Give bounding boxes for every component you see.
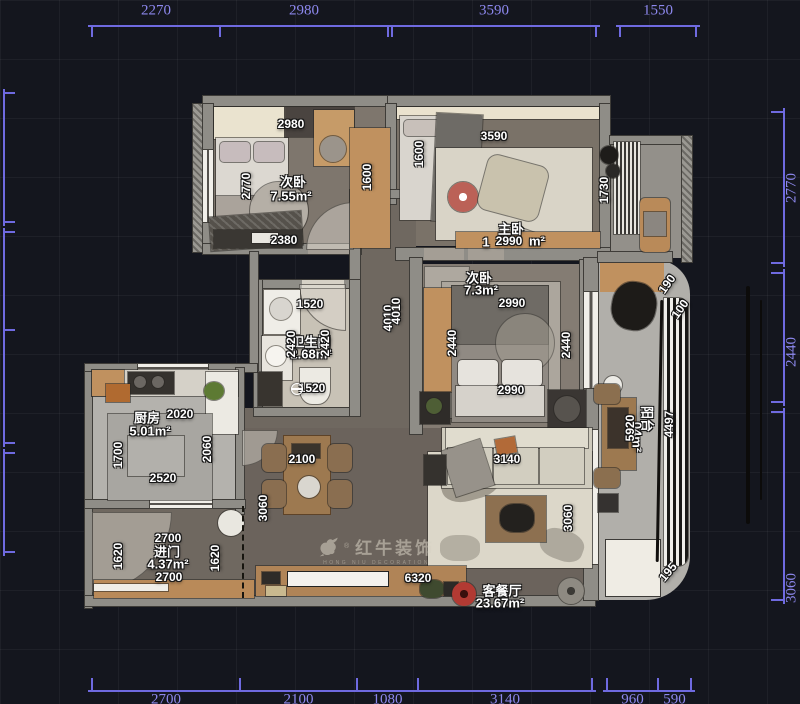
room-label: 1 [482,235,489,250]
dimension-label: 2380 [271,233,298,247]
device [558,578,584,604]
sink-basin [266,346,286,366]
dimension-line [695,25,697,37]
rug-pattern [440,535,480,561]
wall [254,408,358,416]
dimension-line [595,25,597,37]
vegetable-decor [204,382,224,400]
dimension-label: 2440 [559,332,573,359]
exterior-dimension-label: 2770 [784,173,800,203]
dimension-line [3,326,5,447]
wall [682,136,692,262]
dining-chair [262,444,286,472]
decor-item [266,586,286,596]
dimension-line [3,329,15,331]
exterior-dimension-label: 960 [621,692,644,704]
tv [288,572,388,586]
sofa-cushion [540,448,584,484]
dimension-label: 2980 [278,117,305,131]
chair [320,136,346,162]
balcony-chair [594,384,620,404]
dimension-line [88,25,224,27]
wall [250,252,258,370]
speaker-red [452,582,476,606]
side-table [424,455,446,485]
dimension-line [657,678,659,690]
decor-item [262,572,280,584]
wall [85,372,92,608]
wall [203,96,397,106]
dimension-line [3,442,15,444]
dimension-line [387,25,389,37]
dimension-label: 1600 [412,141,426,168]
dimension-label: 2770 [239,173,253,200]
dimension-label: 2100 [289,452,316,466]
washing-machine [606,540,660,596]
exterior-dimension-label: 2440 [784,337,800,367]
wall [598,252,672,262]
floor-cushion [448,182,478,212]
dimension-line [3,89,5,226]
bench [456,232,600,248]
wall [388,96,610,106]
chair-cushion [644,212,666,236]
dimension-line [771,272,783,274]
pillow [220,142,250,162]
table-plant [500,504,534,532]
food-decor [106,384,130,402]
exterior-dimension-label: 3140 [490,692,520,704]
dimension-label: 4497 [662,411,676,438]
dimension-line [771,599,783,601]
dimension-label: 2420 [284,331,298,358]
kitchen-tile [128,436,184,476]
dimension-label: 3060 [561,505,575,532]
dimension-line [391,25,393,37]
dimension-label: 3590 [481,129,508,143]
dimension-line [388,25,600,27]
stool [598,494,618,512]
exterior-dimension-label: 2270 [141,3,171,20]
fan [554,396,580,422]
dimension-label: 3060 [256,495,270,522]
pillow [254,142,284,162]
watermark-brand: 红牛装饰 [355,534,435,559]
bull-logo-icon [318,536,342,558]
dimension-label: 5920 [623,415,637,442]
dimension-label: 2990 [498,383,525,397]
dimension-label: 2990 [499,296,526,310]
dimension-label: 1520 [297,297,324,311]
dimension-line [3,452,15,454]
dimension-line [3,231,15,233]
dimension-line [771,262,783,264]
dimension-label: 3140 [494,452,521,466]
dimension-line [3,221,15,223]
room-label: 5.01m² [129,424,170,439]
section-marker-icon [291,383,303,395]
dimension-label: 2440 [445,330,459,357]
balcony-chair [594,468,620,488]
wall [350,280,360,416]
dimension-label: 2990 [496,234,523,248]
window [584,292,598,388]
dimension-line [591,678,593,690]
dimension-line [91,25,93,37]
room-label: 7.3m² [464,283,498,298]
dimension-line [3,92,15,94]
wall [193,104,203,252]
dimension-line [216,25,392,27]
watermark: ® 红牛装饰 HONG NIU DECORATION [318,534,435,566]
dimension-line [606,678,608,690]
exterior-dimension-label: 2700 [151,692,181,704]
room-label: 23.67m² [476,596,524,611]
plant [426,398,442,414]
headboard-cabinet [214,107,284,139]
dimension-label: 2700 [155,531,182,545]
dimension-label: 2420 [318,330,332,357]
dimension-line [219,25,221,37]
dimension-line [3,449,5,556]
dimension-label: 1600 [360,164,374,191]
door-opening [468,248,504,260]
dimension-line [417,678,419,690]
dimension-line [3,551,15,553]
annotation-scribble [746,286,750,524]
watermark-subtext: HONG NIU DECORATION [318,560,435,566]
dimension-line [356,678,358,690]
room-label: m² [529,234,545,249]
dimension-line [771,401,783,403]
dimension-label: 2520 [150,471,177,485]
window [203,150,213,222]
vanity [258,372,282,406]
speaker [600,146,618,164]
dimension-label: 2020 [167,407,194,421]
dimension-line [771,411,783,413]
ceiling-lamp [218,510,244,536]
window [150,500,212,508]
dining-chair [328,444,352,472]
dimension-label: 1730 [597,177,611,204]
exterior-dimension-label: 590 [663,692,686,704]
dimension-line [616,25,700,27]
exterior-dimension-label: 3060 [784,573,800,603]
room-label: 7.55m² [270,189,311,204]
burner [134,376,146,388]
dimension-label: 2700 [156,570,183,584]
door-opening [424,248,464,260]
exterior-dimension-label: 1550 [643,3,673,20]
dining-chair [328,480,352,508]
exterior-dimension-label: 2100 [284,692,314,704]
dimension-label: 4010 [389,298,403,325]
projection-line [242,506,244,598]
dimension-label: 1620 [111,543,125,570]
door-leaf [94,584,168,591]
burner [152,376,164,388]
registered-mark: ® [344,543,349,550]
teapot [298,476,320,498]
dimension-line [91,678,93,690]
pillow [458,360,498,386]
exterior-dimension-label: 1080 [373,692,403,704]
floorplan-canvas[interactable]: 次卧7.55m²主卧1m²次卧7.3m²卫生间2.68m²厨房5.01m²进门4… [0,0,800,704]
dimension-line [690,678,692,690]
dimension-label: 1700 [111,442,125,469]
dimension-line [771,111,783,113]
dimension-label: 2060 [200,436,214,463]
dimension-label: 1620 [208,545,222,572]
dimension-line [3,228,5,334]
dimension-line [619,25,621,37]
washer-door [270,298,292,320]
annotation-scribble [760,300,762,500]
dimension-label: 6320 [405,571,432,585]
dimension-line [239,678,241,690]
exterior-dimension-label: 3590 [479,3,509,20]
exterior-dimension-label: 2980 [289,3,319,20]
